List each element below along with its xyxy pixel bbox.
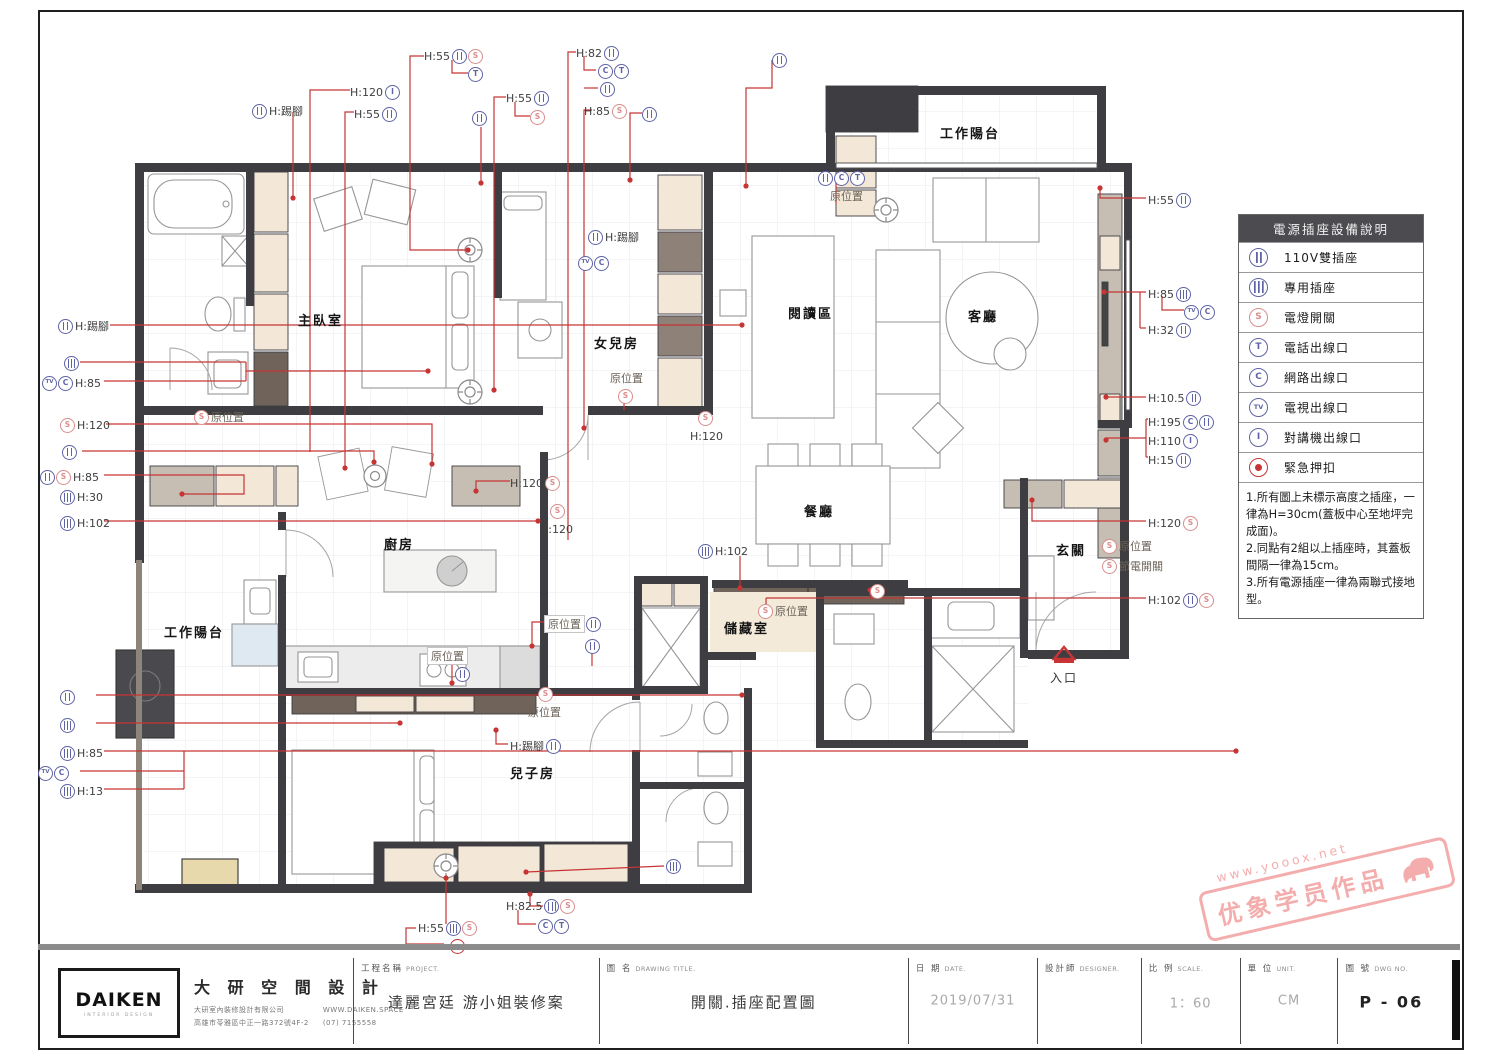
light-switch-icon: S — [758, 604, 773, 619]
legend-row-label: 緊急押扣 — [1284, 459, 1336, 476]
annotation-callout: H:82.5S — [506, 898, 575, 914]
legend-row: S電燈開關 — [1239, 302, 1423, 332]
annotation-text: H:32 — [1148, 324, 1174, 337]
duplex-outlet-icon — [1176, 323, 1191, 338]
annotation-callout: 原位置 — [545, 616, 601, 632]
annotation-callout: H:82 — [576, 45, 619, 61]
unit-cell: 單 位UNIT. CM — [1240, 958, 1338, 1044]
light-switch-icon: S — [612, 104, 627, 119]
date-value: 2019/07/31 — [909, 993, 1037, 1008]
annotation-text: H:15 — [1148, 454, 1174, 467]
annotation-callout — [772, 52, 787, 68]
annotation-callout: S — [530, 109, 545, 125]
duplex-outlet-icon — [546, 739, 561, 754]
annotation-callout — [62, 444, 77, 460]
annotation-callout: SH:85 — [40, 469, 99, 485]
dedicated-outlet-icon — [60, 490, 75, 505]
light-switch-icon: S — [1102, 539, 1117, 554]
legend-row-label: 電燈開關 — [1284, 309, 1336, 326]
annotation-text: H:55 — [1148, 194, 1174, 207]
annotation-callout: S — [698, 410, 713, 426]
annotation-callout — [60, 689, 75, 705]
annotation-text: H:55 — [418, 922, 444, 935]
legend-row-label: 網路出線口 — [1284, 369, 1349, 386]
duplex-outlet-icon — [1176, 453, 1191, 468]
drawing-title-cell: 圖 名DRAWING TITLE. 開關.插座配置圖 — [599, 958, 908, 1044]
annotation-text: H:踢腳 — [510, 738, 544, 754]
duplex-outlet-icon — [600, 82, 615, 97]
network-outlet-icon: C — [598, 64, 613, 79]
annotation-callout — [600, 81, 615, 97]
legend-row: C網路出線口 — [1239, 362, 1423, 392]
drawing-title: 開關.插座配置圖 — [600, 991, 908, 1012]
dedicated-outlet-icon — [544, 899, 559, 914]
elephant-icon — [1394, 849, 1440, 887]
network-outlet-icon: C — [834, 171, 849, 186]
annotation-callout — [60, 717, 75, 733]
annotation-callout: H:55 — [354, 106, 397, 122]
light-switch-icon: S — [560, 899, 575, 914]
light-switch-icon: S — [545, 476, 560, 491]
dedicated-outlet-icon — [60, 746, 75, 761]
company-address: 高雄市苓雅區中正一路372號4F-2 — [194, 1017, 309, 1030]
duplex-outlet-icon — [472, 111, 487, 126]
network-outlet-icon: C — [1200, 305, 1215, 320]
room-label: 工作陽台 — [164, 622, 224, 641]
tv-outlet-icon: TV — [42, 376, 57, 391]
annotation-callout: H:195C — [1148, 414, 1214, 430]
entrance-triangle-icon — [1051, 644, 1077, 664]
duplex-outlet-icon — [534, 91, 549, 106]
designer-cell: 設計師DESIGNER. — [1037, 958, 1141, 1044]
legend-row: 110V雙插座 — [1239, 242, 1423, 272]
annotation-text: 原位置 — [528, 704, 561, 720]
legend-row: TV電視出線口 — [1239, 392, 1423, 422]
duplex-outlet-icon — [1199, 415, 1214, 430]
annotation-text: H:195 — [1148, 416, 1181, 429]
tv-outlet-icon: TV — [1184, 305, 1199, 320]
room-label: 女兒房 — [594, 333, 639, 352]
duplex-outlet-icon — [642, 107, 657, 122]
legend-row: 緊急押扣 — [1239, 452, 1423, 482]
annotation-callout: 原位置 — [528, 704, 563, 720]
duplex-outlet-icon — [1183, 593, 1198, 608]
annotation-text: H:85 — [584, 105, 610, 118]
dwg-no-cell: 圖 號DWG NO. P - 06 — [1337, 958, 1444, 1044]
annotation-text: 原位置 — [1119, 538, 1152, 554]
legend-row-label: 專用插座 — [1284, 279, 1336, 296]
annotation-callout: H:120I — [350, 84, 400, 100]
duplex-outlet-icon — [586, 617, 601, 632]
date-cell: 日 期DATE. 2019/07/31 — [908, 958, 1037, 1044]
annotation-text: 原位置 — [428, 648, 467, 664]
light-switch-icon: S — [60, 418, 75, 433]
duplex-outlet-icon — [604, 46, 619, 61]
annotation-text: H:10.5 — [1148, 392, 1184, 405]
annotation-text: 原位置 — [775, 603, 808, 619]
scale-value: 1：60 — [1142, 992, 1240, 1011]
title-block: DAIKEN INTERIOR DESIGN 大 研 空 間 設 計 大研室內裝… — [40, 956, 1460, 1044]
light-switch-icon: S — [530, 110, 545, 125]
annotation-text: H:82 — [576, 47, 602, 60]
annotation-text: 原位置 — [830, 188, 863, 204]
annotation-callout: H:120S — [1148, 515, 1198, 531]
light-switch-icon: S — [56, 470, 71, 485]
entrance-marker: 入口 — [1050, 644, 1078, 686]
room-label: 客廳 — [968, 306, 998, 325]
annotation-callout: 原位置 — [830, 188, 865, 204]
annotation-callout — [472, 110, 487, 126]
light-switch-icon: S — [462, 921, 477, 936]
duplex-outlet-icon — [452, 49, 467, 64]
annotation-callout — [455, 666, 470, 682]
drawing-sheet: 主臥室女兒房閱讀區客廳工作陽台餐廳廚房工作陽台兒子房儲藏室玄關 H:踢腳H:12… — [0, 0, 1500, 1054]
room-label: 儲藏室 — [724, 618, 769, 637]
legend-row-label: 電話出線口 — [1284, 339, 1349, 356]
room-label: 玄關 — [1056, 540, 1086, 559]
annotation-callout: SH:120 — [60, 417, 110, 433]
annotation-text: H:120 — [350, 86, 383, 99]
duplex-outlet-icon — [585, 639, 600, 654]
annotation-text: H:120 — [1148, 517, 1181, 530]
annotation-callout: S原位置 — [194, 409, 244, 425]
phone-outlet-icon: T — [614, 64, 629, 79]
annotation-callout: TVC — [578, 255, 609, 271]
intercom-outlet-icon: I — [385, 85, 400, 100]
entrance-label: 入口 — [1050, 669, 1078, 686]
room-label: 主臥室 — [298, 310, 343, 329]
annotation-callout: H:32 — [1148, 322, 1191, 338]
annotation-callout: CT — [818, 170, 865, 186]
annotation-callout: H:110I — [1148, 433, 1198, 449]
annotation-callout: TVC — [1184, 304, 1215, 320]
annotation-callout: H:120S — [510, 475, 560, 491]
annotation-callout: H:55S — [418, 920, 477, 936]
dedicated-outlet-icon — [60, 718, 75, 733]
annotation-text: H:踢腳 — [75, 318, 109, 334]
annotation-text: H:13 — [77, 785, 103, 798]
annotation-text: H:82.5 — [506, 900, 542, 913]
intercom-outlet-icon: I — [1183, 434, 1198, 449]
tv-outlet-icon: TV — [578, 256, 593, 271]
annotation-callout — [642, 106, 657, 122]
legend-rows: 110V雙插座專用插座S電燈開關T電話出線口C網路出線口TV電視出線口I對講機出… — [1239, 242, 1423, 482]
intercom-outlet-icon: I — [1249, 428, 1268, 447]
legend-row-label: 對講機出線口 — [1284, 429, 1362, 446]
dedicated-outlet-icon — [666, 859, 681, 874]
dedicated-outlet-icon — [1249, 278, 1268, 297]
duplex-outlet-icon — [40, 470, 55, 485]
annotation-callout: H:55 — [1148, 192, 1191, 208]
tv-outlet-icon: TV — [1249, 398, 1268, 417]
annotation-text: H:120 — [690, 430, 723, 443]
duplex-outlet-icon — [455, 667, 470, 682]
annotation-text: H:102 — [1148, 594, 1181, 607]
dedicated-outlet-icon — [698, 544, 713, 559]
duplex-outlet-icon — [62, 445, 77, 460]
scale-cell: 比 例SCALE. 1：60 — [1141, 958, 1240, 1044]
duplex-outlet-icon — [772, 53, 787, 68]
annotation-text: H:30 — [77, 491, 103, 504]
unit-value: CM — [1241, 993, 1338, 1008]
annotation-callout: T — [468, 66, 483, 82]
legend-row: 專用插座 — [1239, 272, 1423, 302]
light-switch-icon: S — [1249, 308, 1268, 327]
room-label: 工作陽台 — [940, 123, 1000, 142]
network-outlet-icon: C — [58, 376, 73, 391]
annotation-callout: H:120 — [540, 521, 575, 537]
annotation-callout: H:102S — [1148, 592, 1214, 608]
light-switch-icon: S — [1183, 516, 1198, 531]
annotation-callout: S — [550, 503, 565, 519]
title-block-end-bar — [1452, 960, 1460, 1040]
light-switch-icon: S — [538, 687, 553, 702]
annotation-text: H:55 — [354, 108, 380, 121]
annotation-callout: H:踢腳 — [58, 318, 109, 334]
duplex-outlet-icon — [1249, 248, 1268, 267]
annotation-callout: H:踢腳 — [510, 738, 561, 754]
annotation-callout — [666, 858, 681, 874]
annotation-callout: S節電開關 — [1102, 558, 1163, 574]
annotation-text: H:102 — [77, 517, 110, 530]
duplex-outlet-icon — [818, 171, 833, 186]
duplex-outlet-icon — [1176, 193, 1191, 208]
legend-notes: 1.所有圖上未標示高度之插座，一律為H=30cm(蓋板中心至地坪完成面)。 2.… — [1239, 482, 1423, 618]
project-name: 達麗宮廷 游小姐裝修案 — [354, 991, 599, 1012]
annotation-text: H:55 — [424, 50, 450, 63]
annotation-text: 原位置 — [211, 409, 244, 425]
annotation-text: H:85 — [1148, 288, 1174, 301]
annotation-callout: H:85 — [1148, 286, 1191, 302]
duplex-outlet-icon — [60, 690, 75, 705]
phone-outlet-icon: T — [554, 919, 569, 934]
phone-outlet-icon: T — [850, 171, 865, 186]
annotation-text: 原位置 — [545, 616, 584, 632]
annotation-callout: S原位置 — [758, 603, 808, 619]
emergency-button-icon — [1249, 458, 1268, 477]
duplex-outlet-icon — [58, 319, 73, 334]
annotation-callout: H:85S — [584, 103, 627, 119]
network-outlet-icon: C — [1249, 368, 1268, 387]
network-outlet-icon: C — [1183, 415, 1198, 430]
annotation-text: H:85 — [73, 471, 99, 484]
annotation-text: 原位置 — [610, 370, 643, 386]
company-logo: DAIKEN INTERIOR DESIGN — [58, 968, 180, 1038]
annotation-callout — [64, 355, 79, 371]
annotation-text: H:110 — [1148, 435, 1181, 448]
annotation-callout: CT — [598, 63, 629, 79]
annotation-callout: 原位置 — [428, 648, 469, 664]
legend-panel: 電源插座設備說明 110V雙插座專用插座S電燈開關T電話出線口C網路出線口TV電… — [1238, 214, 1424, 619]
annotation-callout: S — [618, 388, 633, 404]
dedicated-outlet-icon — [446, 921, 461, 936]
light-switch-icon: S — [618, 389, 633, 404]
duplex-outlet-icon — [588, 230, 603, 245]
duplex-outlet-icon — [382, 107, 397, 122]
dwg-no-value: P - 06 — [1338, 992, 1444, 1011]
duplex-outlet-icon — [1186, 391, 1201, 406]
annotation-callout — [585, 638, 600, 654]
room-label: 兒子房 — [510, 763, 555, 782]
annotation-callout: H:85 — [60, 745, 103, 761]
annotation-callout: H:踢腳 — [588, 229, 639, 245]
annotation-callout: H:55 — [506, 90, 549, 106]
phone-outlet-icon: T — [1249, 338, 1268, 357]
company-cell: DAIKEN INTERIOR DESIGN 大 研 空 間 設 計 大研室內裝… — [40, 958, 353, 1054]
room-label: 餐廳 — [804, 501, 834, 520]
annotation-text: H:120 — [77, 419, 110, 432]
annotation-text: H:55 — [506, 92, 532, 105]
legend-row-label: 110V雙插座 — [1284, 249, 1358, 266]
light-switch-icon: S — [698, 411, 713, 426]
annotation-text: H:102 — [715, 545, 748, 558]
tv-outlet-icon: TV — [38, 766, 53, 781]
light-switch-icon: S — [1199, 593, 1214, 608]
annotation-text: H:85 — [75, 377, 101, 390]
room-label: 廚房 — [384, 534, 414, 553]
annotation-callout: TVC — [38, 765, 69, 781]
light-switch-icon: S — [1102, 559, 1117, 574]
legend-row: I對講機出線口 — [1239, 422, 1423, 452]
dedicated-outlet-icon — [60, 784, 75, 799]
annotation-callout: H:15 — [1148, 452, 1191, 468]
legend-row-label: 電視出線口 — [1284, 399, 1349, 416]
annotation-callout: S — [870, 583, 885, 599]
annotation-callout: H:踢腳 — [252, 103, 303, 119]
annotation-callout: TVCH:85 — [42, 375, 101, 391]
phone-outlet-icon: T — [468, 67, 483, 82]
annotation-text: H:120 — [510, 477, 543, 490]
network-outlet-icon: C — [538, 919, 553, 934]
separator-band — [38, 944, 1460, 950]
annotation-callout: H:102 — [60, 515, 110, 531]
legend-row: T電話出線口 — [1239, 332, 1423, 362]
light-switch-icon: S — [870, 584, 885, 599]
dedicated-outlet-icon — [1176, 287, 1191, 302]
room-label: 閱讀區 — [788, 303, 833, 322]
annotation-callout: S原位置 — [1102, 538, 1152, 554]
annotation-callout: CT — [538, 918, 569, 934]
dedicated-outlet-icon — [60, 516, 75, 531]
annotation-callout: 原位置 — [610, 370, 645, 386]
project-cell: 工程名稱PROJECT. 達麗宮廷 游小姐裝修案 — [353, 958, 599, 1044]
light-switch-icon: S — [468, 49, 483, 64]
company-name: 大研室內裝修設計有限公司 — [194, 1004, 309, 1017]
light-switch-icon: S — [194, 410, 209, 425]
annotation-text: H:120 — [540, 523, 573, 536]
annotation-callout: H:55S — [424, 48, 483, 64]
annotation-text: H:踢腳 — [269, 103, 303, 119]
network-outlet-icon: C — [54, 766, 69, 781]
legend-title: 電源插座設備說明 — [1239, 215, 1423, 242]
dedicated-outlet-icon — [64, 356, 79, 371]
annotation-text: H:85 — [77, 747, 103, 760]
annotation-callout: H:120 — [690, 428, 725, 444]
annotation-text: H:踢腳 — [605, 229, 639, 245]
duplex-outlet-icon — [252, 104, 267, 119]
annotation-callout: H:102 — [698, 543, 748, 559]
annotation-callout: H:10.5 — [1148, 390, 1201, 406]
network-outlet-icon: C — [594, 256, 609, 271]
light-switch-icon: S — [550, 504, 565, 519]
annotation-callout: S — [538, 686, 553, 702]
annotation-callout: H:13 — [60, 783, 103, 799]
annotation-callout: H:30 — [60, 489, 103, 505]
annotation-text: 節電開關 — [1119, 558, 1163, 574]
